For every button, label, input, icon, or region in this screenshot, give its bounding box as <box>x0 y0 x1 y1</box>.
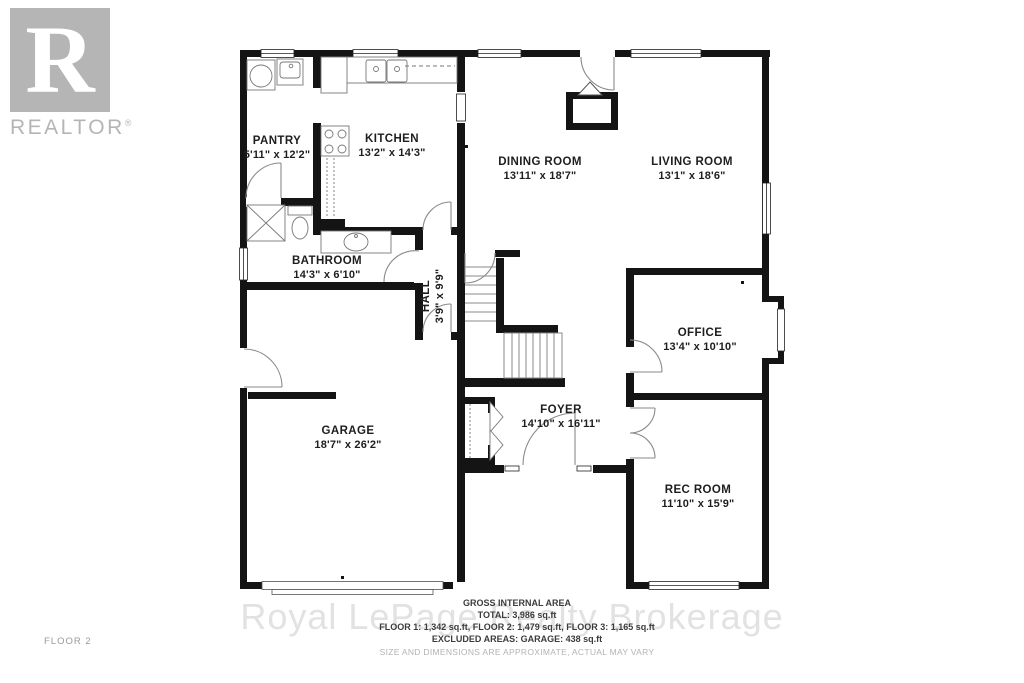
pantry-dims: 5'11" x 12'2" <box>244 149 311 161</box>
garage-side-door <box>244 349 282 387</box>
office-dims: 13'4" x 10'10" <box>663 341 737 353</box>
bifold-door-icon <box>490 430 503 460</box>
kitchen-passthrough <box>457 94 466 121</box>
room-label-hall: HALL 3'9" x 9'9" <box>420 269 446 324</box>
dimension-dots <box>341 145 744 579</box>
room-label-garage: GARAGE 18'7" x 26'2" <box>314 425 381 451</box>
pantry-door <box>246 163 281 198</box>
bathroom-name: BATHROOM <box>292 255 362 267</box>
rec-room-name: REC ROOM <box>662 484 735 496</box>
toilet-icon <box>288 206 312 215</box>
total-area: TOTAL: 3,986 sq.ft <box>312 610 722 620</box>
bathroom-dims: 14'3" x 6'10" <box>292 269 362 281</box>
rec-room-dims: 11'10" x 15'9" <box>662 498 735 510</box>
room-label-kitchen: KITCHEN 13'2" x 14'3" <box>358 133 425 159</box>
floor-plan-svg <box>0 0 1024 683</box>
floor-areas: FLOOR 1: 1,342 sq.ft, FLOOR 2: 1,479 sq.… <box>312 622 722 632</box>
room-label-foyer: FOYER 14'10" x 16'11" <box>521 404 600 430</box>
area-summary: GROSS INTERNAL AREA TOTAL: 3,986 sq.ft F… <box>312 598 722 657</box>
room-label-dining: DINING ROOM 13'11" x 18'7" <box>498 156 582 182</box>
foyer-name: FOYER <box>521 404 600 416</box>
room-label-office: OFFICE 13'4" x 10'10" <box>663 327 737 353</box>
room-label-pantry: PANTRY 5'11" x 12'2" <box>244 135 311 161</box>
fireplace-icon <box>566 82 618 130</box>
living-dims: 13'1" x 18'6" <box>651 170 733 182</box>
dining-name: DINING ROOM <box>498 156 582 168</box>
excluded-areas: EXCLUDED AREAS: GARAGE: 438 sq.ft <box>312 634 722 644</box>
dining-dims: 13'11" x 18'7" <box>498 170 582 182</box>
kitchen-dims: 13'2" x 14'3" <box>358 147 425 159</box>
hall-dims: 3'9" x 9'9" <box>434 269 446 324</box>
staircase <box>465 267 562 378</box>
floor-plan-page: { "branding": { "logo_letter": "R", "wor… <box>0 0 1024 683</box>
office-bay-window <box>778 309 785 351</box>
patio-door <box>581 57 614 90</box>
foyer-closet <box>470 402 503 460</box>
room-label-bathroom: BATHROOM 14'3" x 6'10" <box>292 255 362 281</box>
front-door-sidelite-right <box>577 466 591 471</box>
room-label-rec: REC ROOM 11'10" x 15'9" <box>662 484 735 510</box>
kitchen-name: KITCHEN <box>358 133 425 145</box>
hall-name: HALL <box>420 269 432 324</box>
floor-page-label: FLOOR 2 <box>44 636 92 647</box>
office-name: OFFICE <box>663 327 737 339</box>
garage-door <box>262 582 443 595</box>
kitchen-hall-door <box>423 202 451 230</box>
garage-dims: 18'7" x 26'2" <box>314 439 381 451</box>
foyer-dims: 14'10" x 16'11" <box>521 418 600 430</box>
bifold-door-icon <box>490 402 503 432</box>
bathroom-door <box>384 251 419 282</box>
room-label-living: LIVING ROOM 13'1" x 18'6" <box>651 156 733 182</box>
laundry-fixtures <box>247 59 303 90</box>
front-door-sidelite-left <box>505 466 519 471</box>
pantry-name: PANTRY <box>244 135 311 147</box>
living-name: LIVING ROOM <box>651 156 733 168</box>
disclaimer: SIZE AND DIMENSIONS ARE APPROXIMATE, ACT… <box>312 647 722 657</box>
gross-internal-area-title: GROSS INTERNAL AREA <box>312 598 722 608</box>
garage-name: GARAGE <box>314 425 381 437</box>
